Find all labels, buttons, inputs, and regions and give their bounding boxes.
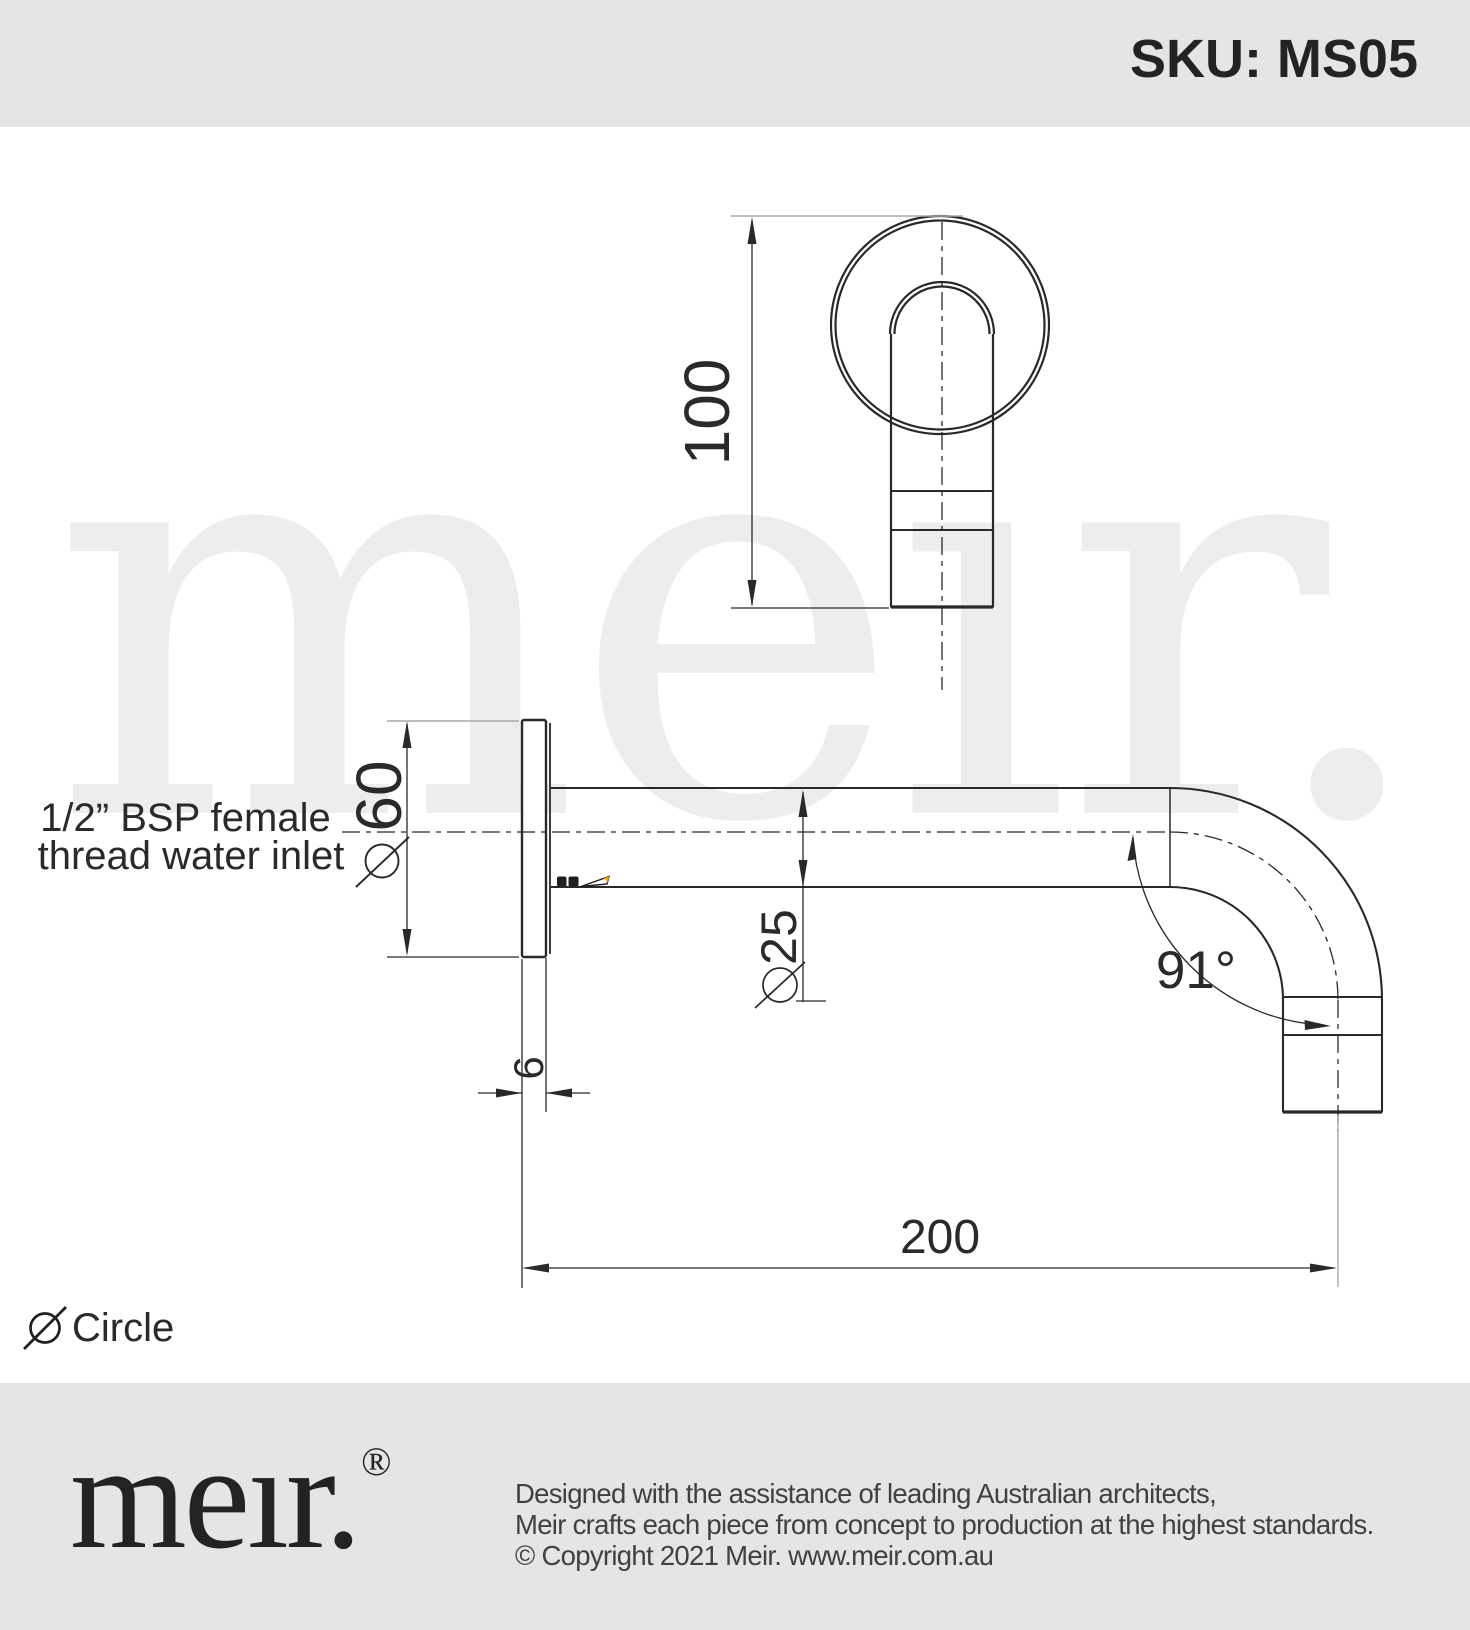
- arrowhead: [799, 860, 808, 887]
- dim-text-91: 91°: [1156, 941, 1236, 1000]
- sku-label: SKU: MS05: [1130, 28, 1418, 90]
- arrowhead: [748, 580, 757, 607]
- footer-line-2: Meir crafts each piece from concept to p…: [515, 1509, 1374, 1540]
- arrowhead: [1305, 1020, 1332, 1030]
- legend-label: Circle: [72, 1306, 174, 1350]
- dim-text-60: 60: [343, 760, 415, 831]
- dim-text-25: 25: [751, 909, 807, 965]
- wall-plate: [522, 720, 546, 957]
- inlet-label-line2: thread water inlet: [38, 834, 345, 878]
- arrowhead: [799, 790, 808, 817]
- arrowhead: [748, 217, 757, 244]
- pencil-icon: [557, 876, 610, 886]
- dimension-annotations: 60 25 6 200: [343, 721, 1338, 1288]
- arrowhead: [496, 1089, 522, 1098]
- technical-drawing: 100: [0, 0, 1470, 1630]
- dim-text-100: 100: [671, 359, 743, 466]
- side-view: [342, 720, 1382, 1132]
- arrowhead: [1128, 834, 1137, 861]
- arrowhead: [403, 929, 412, 956]
- arrowhead: [1310, 1264, 1337, 1273]
- footer-line-3: © Copyright 2021 Meir. www.meir.com.au: [515, 1540, 1374, 1571]
- meir-logo: meır.®: [70, 1422, 390, 1572]
- arrowhead: [546, 1089, 572, 1098]
- arrowhead: [522, 1264, 549, 1273]
- registered-mark: ®: [361, 1439, 391, 1484]
- flange-outer-circle: [831, 216, 1049, 434]
- flange-inner-circle: [836, 221, 1045, 430]
- arrowhead: [403, 721, 412, 748]
- footer-line-1: Designed with the assistance of leading …: [515, 1478, 1374, 1509]
- legend: Circle: [24, 1306, 174, 1350]
- inlet-label: 1/2” BSP female thread water inlet: [38, 796, 345, 878]
- drawing-page: meır. SKU: MS05 100: [0, 0, 1470, 1630]
- dim-text-6: 6: [505, 1056, 552, 1079]
- footer-text-block: Designed with the assistance of leading …: [515, 1478, 1374, 1571]
- front-view: 100: [671, 216, 1049, 690]
- meir-logo-text: meır.: [70, 1414, 359, 1580]
- dim-text-200: 200: [900, 1211, 980, 1264]
